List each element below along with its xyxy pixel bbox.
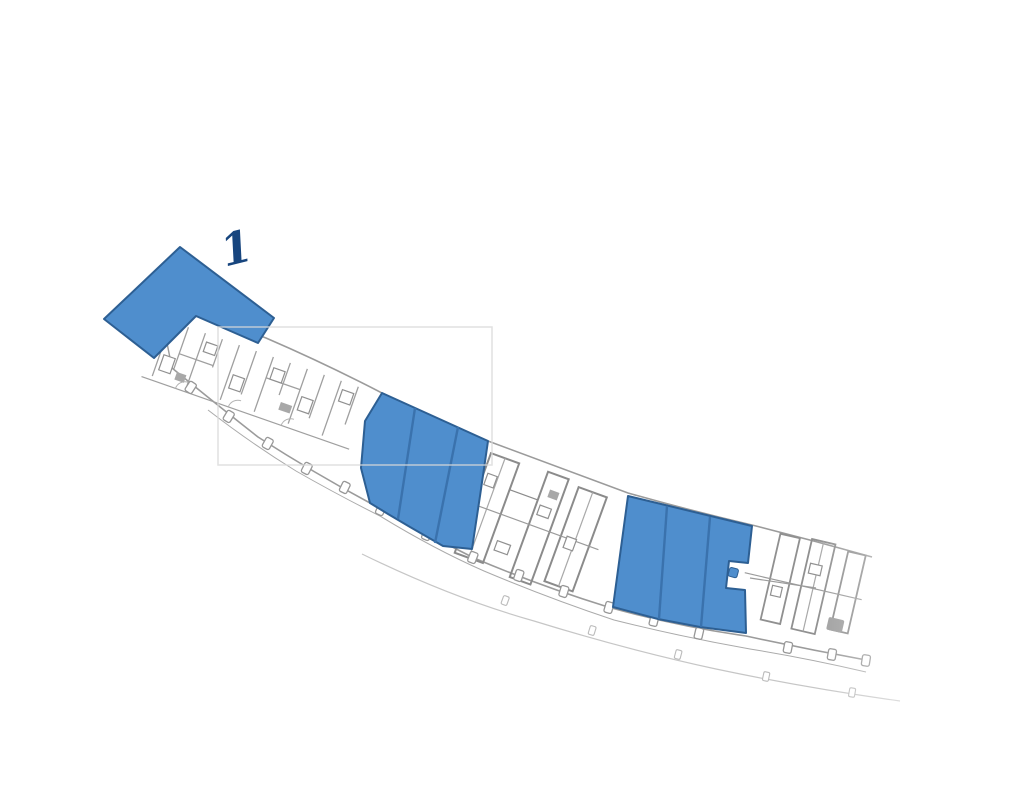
- unit-label-1: 1: [215, 220, 257, 277]
- area-2-shape[interactable]: [361, 393, 488, 549]
- area-3-shape[interactable]: [613, 496, 752, 633]
- floor-plan-canvas: 1: [0, 0, 1024, 786]
- area-3-notch-marker: [728, 567, 739, 578]
- building-plan: [142, 308, 900, 701]
- plan-fade-overlay: [812, 455, 1024, 725]
- floor-plan-page: 1: [0, 0, 1024, 786]
- corridor-line: [750, 578, 816, 588]
- highlighted-area-3[interactable]: [613, 496, 752, 633]
- facade-line: [208, 410, 866, 672]
- highlighted-area-2[interactable]: [361, 393, 488, 549]
